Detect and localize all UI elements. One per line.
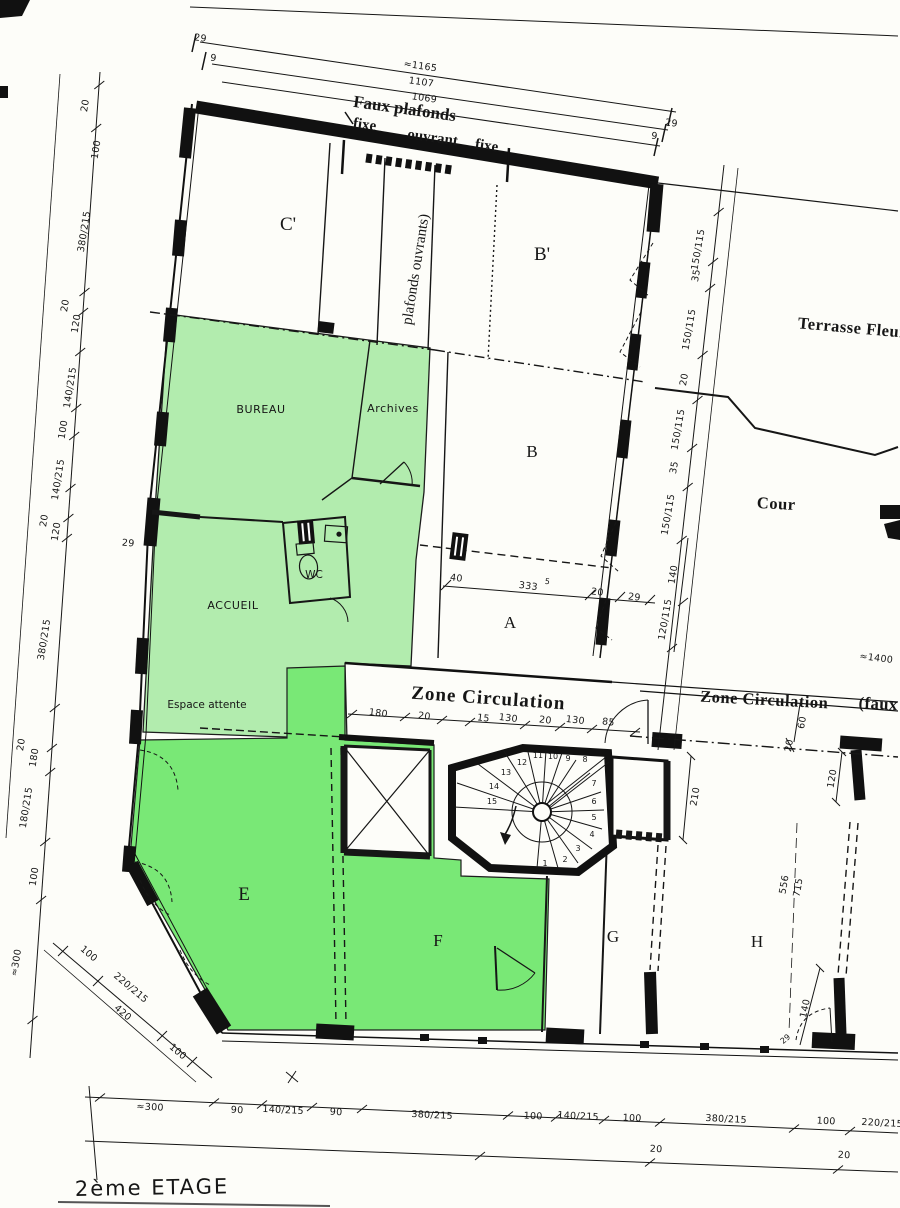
room-h: H	[751, 932, 763, 951]
dim-left-14: 100	[28, 866, 42, 887]
stair-n-12: 12	[517, 758, 527, 767]
dim-z2-0: ≈1400	[859, 651, 894, 666]
label-bureau: BUREAU	[236, 403, 285, 416]
dim-right-0: 150/115	[690, 228, 708, 271]
label-accueil: ACCUEIL	[207, 599, 259, 612]
dim-right-6: 150/115	[660, 493, 678, 536]
sheet-title: 2ème ETAGE	[75, 1174, 230, 1201]
dim-z1-5: 130	[565, 714, 585, 727]
stair-n-1: 1	[542, 859, 547, 868]
stair-n-8: 8	[582, 755, 587, 764]
dim-left-15: ≈300	[9, 948, 24, 977]
dim-b1-1: 90	[231, 1105, 244, 1117]
pier-a-b	[449, 532, 468, 561]
label-espace-attente: Espace attente	[167, 699, 246, 711]
label-zone-circulation-2: Zone Circulation	[700, 687, 829, 713]
dim-b1-10: 220/215	[861, 1117, 900, 1130]
dim-right-2: 150/115	[681, 308, 699, 351]
dim-ll-1: 220/215	[111, 971, 150, 1006]
stair-n-10: 10	[548, 752, 558, 761]
dim-z1-3: 130	[498, 712, 518, 725]
dim-left-3: 20	[59, 298, 72, 312]
pier-wc	[297, 519, 315, 544]
dim-left-13: 180/215	[18, 786, 35, 829]
dim-left-1: 100	[90, 139, 104, 160]
dim-left-7: 140/215	[50, 458, 67, 501]
dim-b1-9: 100	[816, 1116, 836, 1128]
dim-b1-2: 140/215	[262, 1104, 304, 1117]
dim-a-4: 29	[627, 591, 641, 603]
title-block: 2ème ETAGE	[58, 1174, 330, 1206]
dim-b1-6: 140/215	[557, 1110, 599, 1123]
label-fixe-2: fixe	[474, 136, 500, 155]
dim-br-140: 140	[798, 998, 813, 1019]
label-zone-circulation-1: Zone Circulation	[411, 683, 567, 715]
stair-n-2: 2	[562, 855, 567, 864]
dim-z2-1: 60	[796, 715, 809, 729]
dim-ll-2: 420	[112, 1003, 134, 1024]
dim-left-0: 20	[79, 98, 92, 112]
dim-b1-4: 380/215	[411, 1109, 453, 1122]
staircase	[344, 746, 667, 872]
ceiling-annotations: Faux plafonds fixe ouvrant fixe plafonds…	[352, 92, 500, 326]
stair-shaft-right	[612, 757, 667, 840]
stair-n-11: 11	[533, 751, 543, 760]
edge-artifacts	[0, 0, 900, 540]
dim-z2-2: 20	[783, 738, 796, 752]
dim-left-6: 100	[57, 419, 71, 440]
title-underline	[58, 1202, 330, 1206]
dim-topright-29: 29	[664, 117, 678, 130]
dim-b2-0: 20	[650, 1144, 663, 1156]
dim-556: 556	[777, 874, 791, 895]
dim-right-4: 150/115	[670, 408, 688, 451]
dim-top-0: ≈1165	[403, 59, 438, 75]
room-g: G	[607, 927, 619, 946]
label-terrasse: Terrasse Fleur	[797, 313, 900, 341]
label-wc: WC	[305, 569, 323, 581]
stair-n-6: 6	[591, 797, 596, 806]
label-fixe-1: fixe	[352, 115, 378, 134]
label-cour: Cour	[756, 493, 796, 514]
dim-left-9: 120	[50, 521, 64, 542]
dim-br-29: 29	[779, 1032, 793, 1045]
dim-ll-0: 100	[78, 944, 100, 965]
dim-b1-7: 100	[622, 1113, 642, 1125]
dim-left-2: 380/215	[76, 210, 93, 253]
dim-b1-3: 90	[330, 1107, 343, 1119]
label-plafonds-ouvrants: plafonds ouvrants)	[399, 213, 432, 326]
room-b: B	[526, 442, 537, 461]
stair-n-9: 9	[565, 754, 570, 763]
dim-left-12: 180	[28, 747, 42, 768]
room-a: A	[504, 613, 517, 632]
dim-210: 210	[688, 786, 702, 807]
room-b-prime: B'	[534, 244, 550, 265]
dim-top-1: 1107	[408, 75, 435, 89]
dim-left-11: 20	[15, 737, 28, 751]
stair-n-13: 13	[501, 768, 511, 777]
dim-a-3: 20	[590, 586, 604, 598]
dim-b1-5: 100	[523, 1111, 543, 1123]
stair-n-7: 7	[591, 779, 596, 788]
dim-b2-1: 20	[838, 1150, 851, 1162]
dim-right-1: 35	[690, 268, 703, 282]
dim-topleft-29: 29	[193, 32, 207, 45]
dim-z1-1: 20	[417, 710, 431, 722]
dim-topleft-9: 9	[209, 53, 217, 65]
dim-z1-4: 20	[538, 714, 552, 726]
dim-rl-0: 140	[666, 564, 680, 585]
dim-a-0: 40	[449, 572, 463, 584]
dim-left-8: 20	[38, 513, 51, 527]
stair-n-15: 15	[487, 797, 497, 806]
stair-n-14: 14	[489, 782, 499, 791]
dim-z1-2: 15	[476, 712, 490, 724]
dim-rl-1: 120/115	[657, 598, 675, 641]
room-c-prime: C'	[280, 214, 296, 235]
stair-n-5: 5	[591, 813, 596, 822]
dim-z1-6: 85	[601, 716, 615, 728]
room-e: E	[238, 884, 250, 905]
dim-715: 715	[791, 877, 805, 898]
label-archives: Archives	[367, 402, 419, 415]
dim-b1-8: 380/215	[705, 1113, 747, 1126]
dim-a-2: 5	[544, 577, 550, 587]
dim-a-1: 333	[518, 580, 538, 593]
stair-n-4: 4	[589, 830, 594, 839]
dim-z1-0: 180	[368, 707, 388, 720]
floor-plan-sheet: ≈1165 1107 1069 29 9 29 9 20 100 380/215…	[0, 0, 900, 1208]
dim-left-10: 380/215	[36, 618, 53, 661]
room-f: F	[433, 931, 442, 950]
dim-right-3: 20	[678, 372, 691, 386]
dim-wall-29: 29	[121, 537, 135, 549]
ouvrant-hatch	[366, 158, 452, 170]
stair-n-3: 3	[575, 844, 580, 853]
dim-b1-0: ≈300	[136, 1101, 164, 1113]
floor-plan-drawing: ≈1165 1107 1069 29 9 29 9 20 100 380/215…	[0, 0, 900, 1208]
label-zone2-note: (faux	[858, 693, 898, 714]
dim-right-5: 35	[668, 460, 681, 474]
